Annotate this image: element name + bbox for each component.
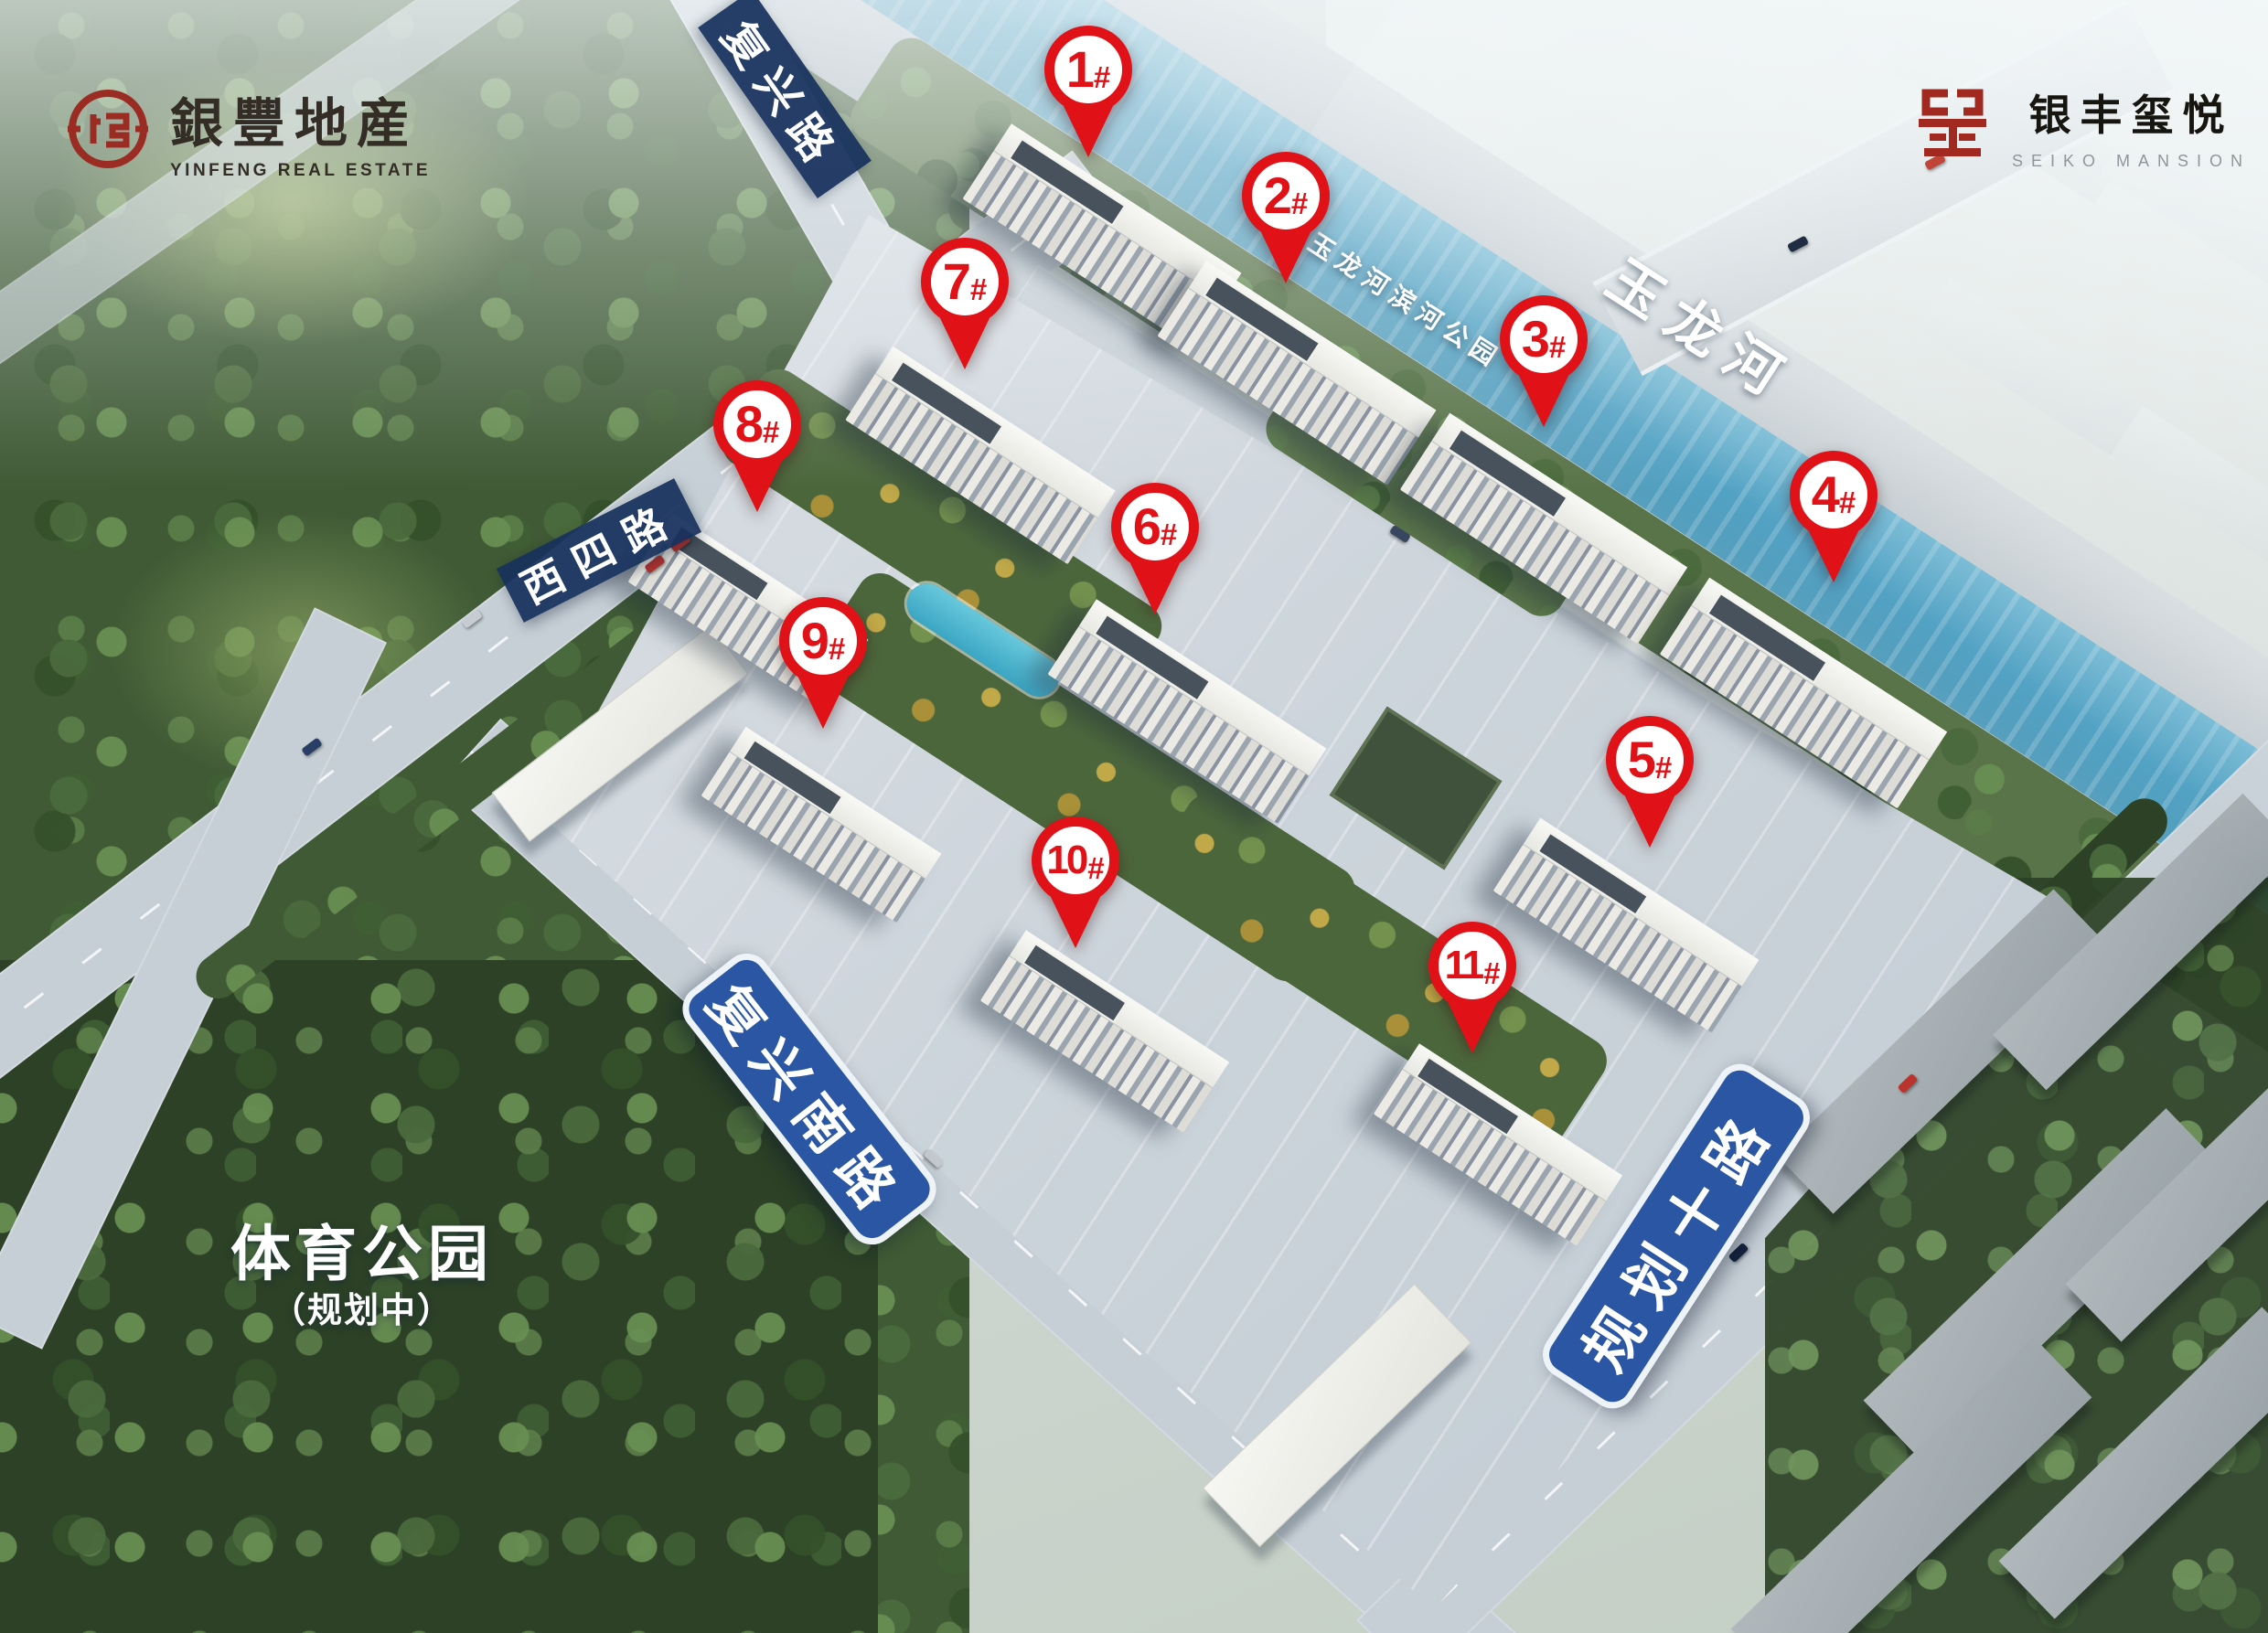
project-name-cn: 银丰玺悦 (2029, 82, 2234, 143)
master-plan-rendering: 复兴路 西四路 复兴南路 规划十路 玉龙河 玉龙河滨河公园 体育公园 （规划中）… (0, 0, 2268, 1633)
pin-tail-icon (1064, 106, 1113, 157)
developer-name-cn: 銀豐地産 (170, 80, 431, 157)
project-logo: 银丰玺悦 SEIKO MANSION (1913, 82, 2251, 171)
building-pin-10[interactable]: 10# (1032, 816, 1119, 954)
pin-head: 4# (1790, 451, 1878, 539)
building-pin-11[interactable]: 11# (1428, 922, 1516, 1059)
developer-logo: 銀豐地産 YINFENG REAL ESTATE (66, 80, 431, 181)
pin-head: 6# (1111, 483, 1199, 571)
pin-tail-icon (1625, 796, 1674, 848)
sports-park-title: 体育公园 (230, 1205, 494, 1293)
pin-tail-icon (1448, 1002, 1497, 1053)
building-pin-9[interactable]: 9# (779, 597, 867, 734)
pin-tail-icon (1051, 897, 1100, 948)
pin-head: 2# (1242, 152, 1330, 240)
pin-head: 5# (1606, 716, 1694, 804)
building-pin-4[interactable]: 4# (1790, 451, 1878, 588)
building-pin-6[interactable]: 6# (1111, 483, 1199, 620)
pin-tail-icon (1261, 232, 1311, 283)
pin-tail-icon (733, 461, 782, 512)
project-name-en: SEIKO MANSION (2012, 152, 2251, 171)
project-logo-icon (1913, 86, 1992, 167)
pin-head: 7# (921, 238, 1009, 326)
pin-tail-icon (940, 318, 990, 369)
sports-park-subtitle: （规划中） (271, 1282, 454, 1332)
developer-name-en: YINFENG REAL ESTATE (170, 161, 431, 181)
pin-head: 3# (1500, 295, 1588, 383)
building-pin-5[interactable]: 5# (1606, 716, 1694, 853)
pin-head: 11# (1428, 922, 1516, 1009)
pin-head: 1# (1044, 26, 1132, 113)
pin-tail-icon (1130, 563, 1180, 614)
building-pin-8[interactable]: 8# (713, 380, 801, 518)
building-pin-7[interactable]: 7# (921, 238, 1009, 375)
pin-tail-icon (1809, 531, 1858, 582)
building-pin-1[interactable]: 1# (1044, 26, 1132, 163)
building-pin-2[interactable]: 2# (1242, 152, 1330, 289)
pin-head: 9# (779, 597, 867, 685)
building-pin-3[interactable]: 3# (1500, 295, 1588, 432)
pin-tail-icon (1519, 376, 1568, 427)
pin-head: 10# (1032, 816, 1119, 904)
pin-tail-icon (798, 678, 848, 729)
pin-head: 8# (713, 380, 801, 468)
yinfeng-seal-icon (66, 87, 150, 176)
